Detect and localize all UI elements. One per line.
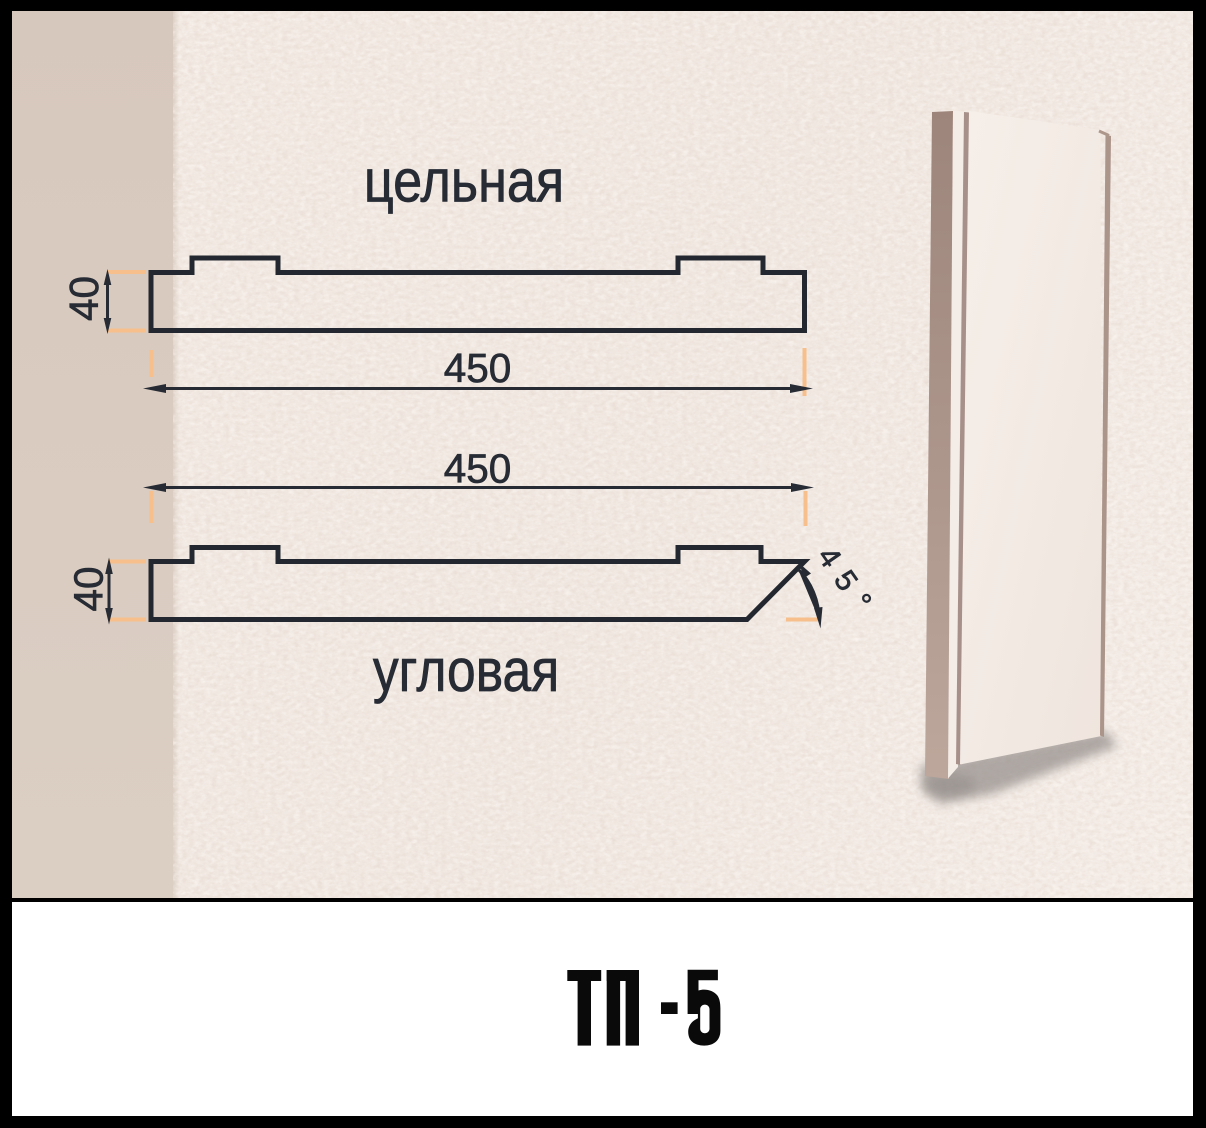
svg-text:угловая: угловая — [373, 636, 559, 704]
svg-text:цельная: цельная — [364, 147, 564, 214]
svg-text:450: 450 — [444, 446, 512, 492]
svg-text:450: 450 — [444, 345, 512, 391]
svg-text:40: 40 — [61, 276, 107, 321]
svg-text:40: 40 — [66, 566, 112, 611]
